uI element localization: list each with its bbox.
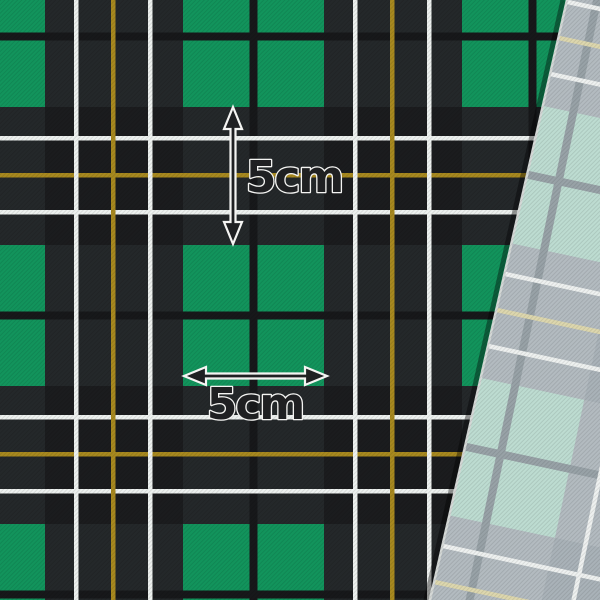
vertical-measurement-label: 5cm [246, 152, 343, 203]
fabric-product-photo: 5cm 5cm [0, 0, 600, 600]
fabric-twill-texture [0, 0, 600, 600]
tartan-photo-canvas: 5cm 5cm [0, 0, 600, 600]
horizontal-measurement-label: 5cm [207, 379, 304, 430]
